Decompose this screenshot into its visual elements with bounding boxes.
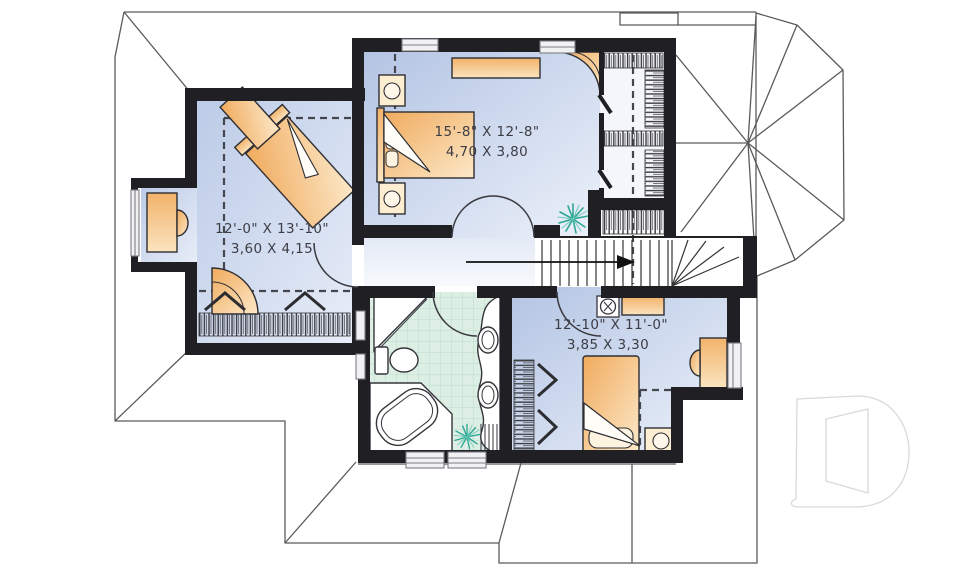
closet-hatch-icon xyxy=(603,131,663,146)
dresser xyxy=(452,58,540,78)
closet-hatch-icon xyxy=(645,70,664,128)
lamp xyxy=(384,191,400,207)
dresser xyxy=(622,297,664,315)
closet-hatch-icon xyxy=(514,360,534,450)
closet-hatch-icon xyxy=(603,53,663,68)
toilet-bowl xyxy=(390,348,418,372)
window-icon xyxy=(406,452,444,468)
window-icon xyxy=(131,190,139,256)
master-dim-imperial: 15'-8" X 12'-8" xyxy=(435,124,540,140)
window-icon xyxy=(540,41,575,53)
window-icon xyxy=(728,343,741,388)
dormer-window xyxy=(620,13,678,25)
lamp xyxy=(653,433,669,449)
window-icon xyxy=(402,39,438,51)
window-icon xyxy=(448,452,486,468)
toilet-tank xyxy=(375,347,388,374)
lamp xyxy=(384,83,400,99)
pillow xyxy=(386,151,398,167)
desk xyxy=(700,338,727,388)
master-dim-metric: 4,70 X 3,80 xyxy=(446,144,528,160)
drummond-d-watermark-icon xyxy=(791,396,909,507)
desk xyxy=(147,193,177,252)
bedroom-right-dim-metric: 3,85 X 3,30 xyxy=(567,337,649,353)
bedroom-left-dim-metric: 3,60 X 4,15 xyxy=(231,241,313,257)
closet-hatch-icon xyxy=(199,313,350,336)
floor-plan-drawing: 15'-8" X 12'-8" 4,70 X 3,80 12'-0" X 13'… xyxy=(0,0,960,569)
headboard xyxy=(377,108,384,182)
floor-plan-canvas: 15'-8" X 12'-8" 4,70 X 3,80 12'-0" X 13'… xyxy=(0,0,960,569)
bedroom-left-dim-imperial: 12'-0" X 13'-10" xyxy=(215,221,329,237)
bedroom-right-dim-imperial: 12'-10" X 11'-0" xyxy=(554,317,668,333)
turret-roof-spokes xyxy=(676,16,844,272)
ceiling-fan-icon xyxy=(597,296,619,317)
closet-hatch-icon xyxy=(645,150,664,196)
